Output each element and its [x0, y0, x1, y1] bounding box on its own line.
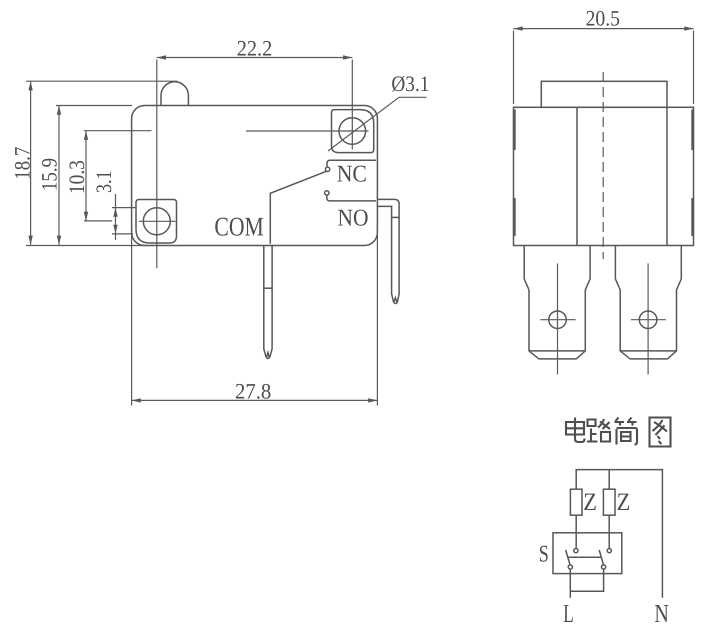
svg-text:27.8: 27.8 — [235, 378, 271, 403]
svg-text:COM: COM — [214, 212, 263, 242]
svg-text:3.1: 3.1 — [91, 170, 116, 193]
svg-text:20.5: 20.5 — [586, 5, 620, 30]
svg-text:15.9: 15.9 — [36, 158, 61, 191]
svg-text:N: N — [654, 599, 669, 628]
svg-text:18.7: 18.7 — [10, 147, 35, 180]
svg-text:10.3: 10.3 — [64, 160, 89, 194]
svg-text:L: L — [563, 599, 574, 628]
svg-text:Z: Z — [583, 489, 597, 516]
svg-text:NC: NC — [337, 162, 367, 188]
svg-text:22.2: 22.2 — [237, 35, 273, 60]
svg-text:Z: Z — [617, 489, 631, 516]
svg-text:Ø3.1: Ø3.1 — [391, 71, 429, 96]
svg-text:S: S — [539, 542, 549, 568]
svg-text:NO: NO — [338, 206, 369, 232]
